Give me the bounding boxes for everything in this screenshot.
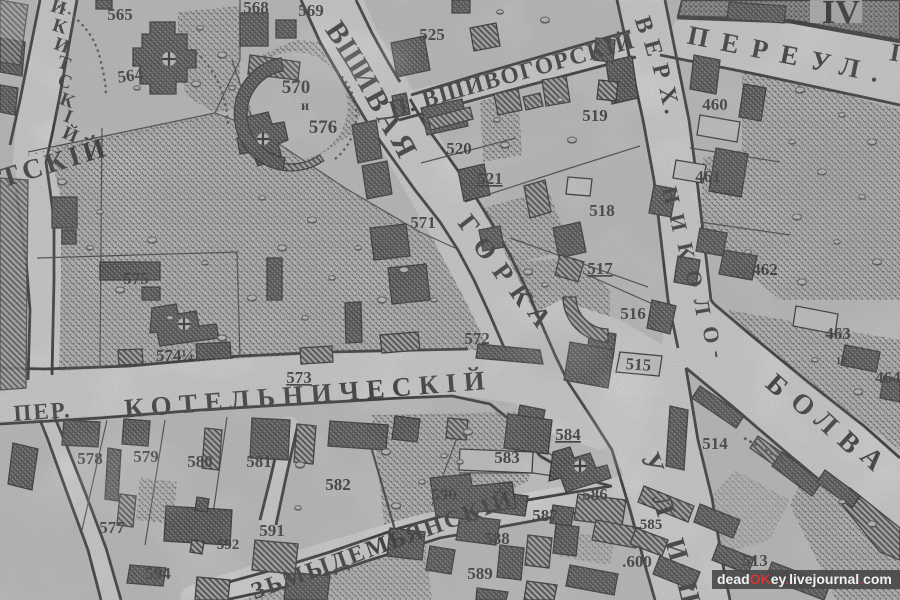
- svg-text:deadOKey.livejournal.com: deadOKey.livejournal.com: [717, 571, 892, 587]
